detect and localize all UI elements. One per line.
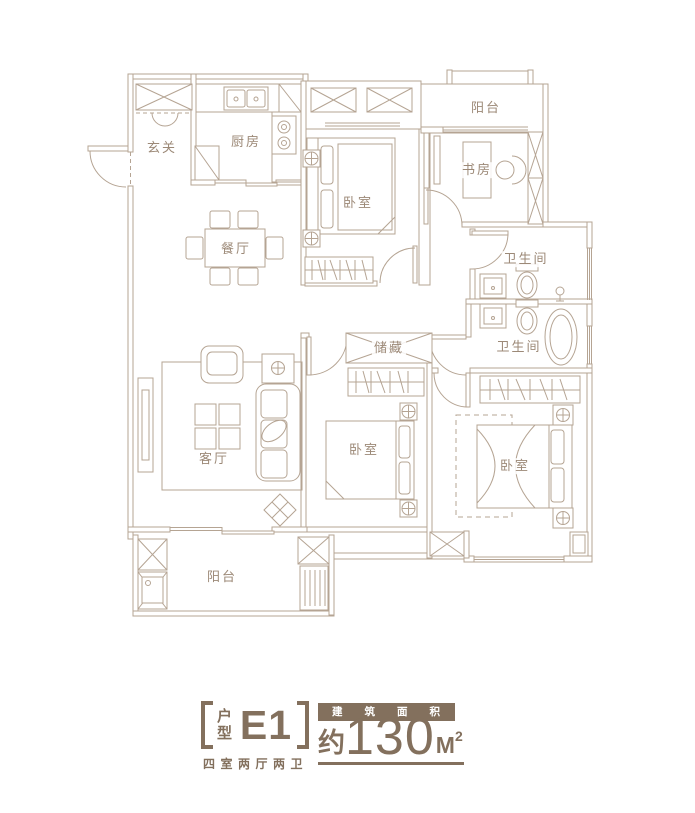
- toilet-icon: [516, 264, 538, 298]
- nightstand-lamp-icon: [553, 405, 573, 425]
- nightstand-lamp-icon: [400, 403, 417, 420]
- desk-chair-icon: [496, 156, 526, 184]
- room-label-study: 书房: [460, 162, 494, 178]
- room-label-balcony-bottom: 阳台: [205, 569, 239, 585]
- stove-icon: [272, 116, 296, 154]
- bathroom-lower-fixtures: [480, 300, 577, 365]
- fridge-icon: [195, 146, 219, 180]
- layout-description: 四室两厅两卫: [203, 755, 309, 772]
- side-table-lamp-icon: [262, 354, 294, 383]
- bedroom-master-door-icon: [434, 373, 470, 407]
- entry-door-icon: [88, 146, 131, 187]
- nightstand-lamp-icon: [400, 500, 417, 517]
- area-value-row: 约 130 M 2: [318, 719, 464, 759]
- tv-icon: [138, 378, 153, 472]
- unit-type-char-bottom: 型: [217, 725, 233, 742]
- sofa-icon: [256, 384, 300, 481]
- unit-type-char-top: 户: [217, 708, 233, 725]
- room-label-entry: 玄关: [145, 140, 179, 156]
- area-value: 130: [345, 716, 435, 759]
- bed-icon: [326, 421, 414, 499]
- balcony-sliding-door-icon: [170, 528, 274, 535]
- area-block: 建筑面积 约 130 M 2: [318, 703, 464, 765]
- room-label-bathroom-lower: 卫生间: [494, 339, 543, 355]
- window-icon: [588, 326, 592, 364]
- nightstand-lamp-icon: [303, 150, 320, 167]
- bracket-right-icon: [297, 701, 309, 749]
- room-label-dining: 餐厅: [219, 241, 253, 257]
- floorplan-page: 玄关 厨房 卧室 阳台 书房 卫生间 卫生间 餐厅 储藏 客厅 卧室 卧室 阳台…: [0, 0, 695, 813]
- room-label-bedroom-middle: 卧室: [347, 442, 381, 458]
- bedroom-top-door-icon: [380, 246, 417, 283]
- living-furniture: [138, 346, 302, 526]
- drying-rack-icon: [300, 566, 328, 610]
- floorplan-drawing: [0, 0, 695, 813]
- toilet-icon: [516, 300, 538, 334]
- bedroom-master-furniture: [456, 376, 580, 528]
- nightstand-lamp-icon: [303, 230, 320, 247]
- room-label-storage: 储藏: [372, 340, 406, 356]
- bathroom-upper-fixtures: [480, 264, 564, 301]
- wardrobe-icon: [348, 368, 424, 396]
- room-label-living: 客厅: [197, 451, 231, 467]
- room-label-balcony-top: 阳台: [469, 100, 503, 116]
- unit-type-code: E1: [235, 701, 297, 749]
- entry-closet-icon: [136, 84, 192, 126]
- unit-type-label: 户 型: [217, 701, 233, 749]
- kitchen-sliding-door-icon: [215, 180, 277, 186]
- kitchen-cabinet-icon: [279, 84, 301, 112]
- armchair-icon: [201, 346, 243, 383]
- washing-machine-icon: [142, 577, 163, 603]
- nightstand-lamp-icon: [553, 508, 573, 528]
- window-icon: [474, 557, 564, 562]
- room-label-bathroom-upper: 卫生间: [501, 251, 550, 267]
- bedroom-middle-door-icon: [307, 337, 347, 375]
- bookshelf-icon: [434, 136, 440, 184]
- bathtub-icon: [545, 309, 577, 365]
- room-label-kitchen: 厨房: [229, 134, 263, 150]
- window-icon: [588, 248, 592, 300]
- area-prefix: 约: [318, 730, 345, 759]
- sink-icon: [480, 304, 506, 328]
- kitchen-counter-icon: [195, 84, 301, 182]
- area-superscript: 2: [455, 729, 463, 743]
- area-unit: M: [436, 734, 455, 759]
- wardrobe-icon: [305, 257, 373, 283]
- bracket-left-icon: [201, 701, 213, 749]
- kitchen-sink-icon: [224, 87, 268, 110]
- room-label-bedroom-master: 卧室: [498, 458, 532, 474]
- room-label-bedroom-top: 卧室: [341, 195, 375, 211]
- unit-type-block: 户 型 E1 四室两厅两卫: [201, 701, 309, 772]
- plant-icon: [264, 494, 296, 526]
- sink-icon: [480, 274, 506, 298]
- coffee-table-icon: [195, 404, 240, 449]
- wardrobe-icon: [480, 376, 580, 403]
